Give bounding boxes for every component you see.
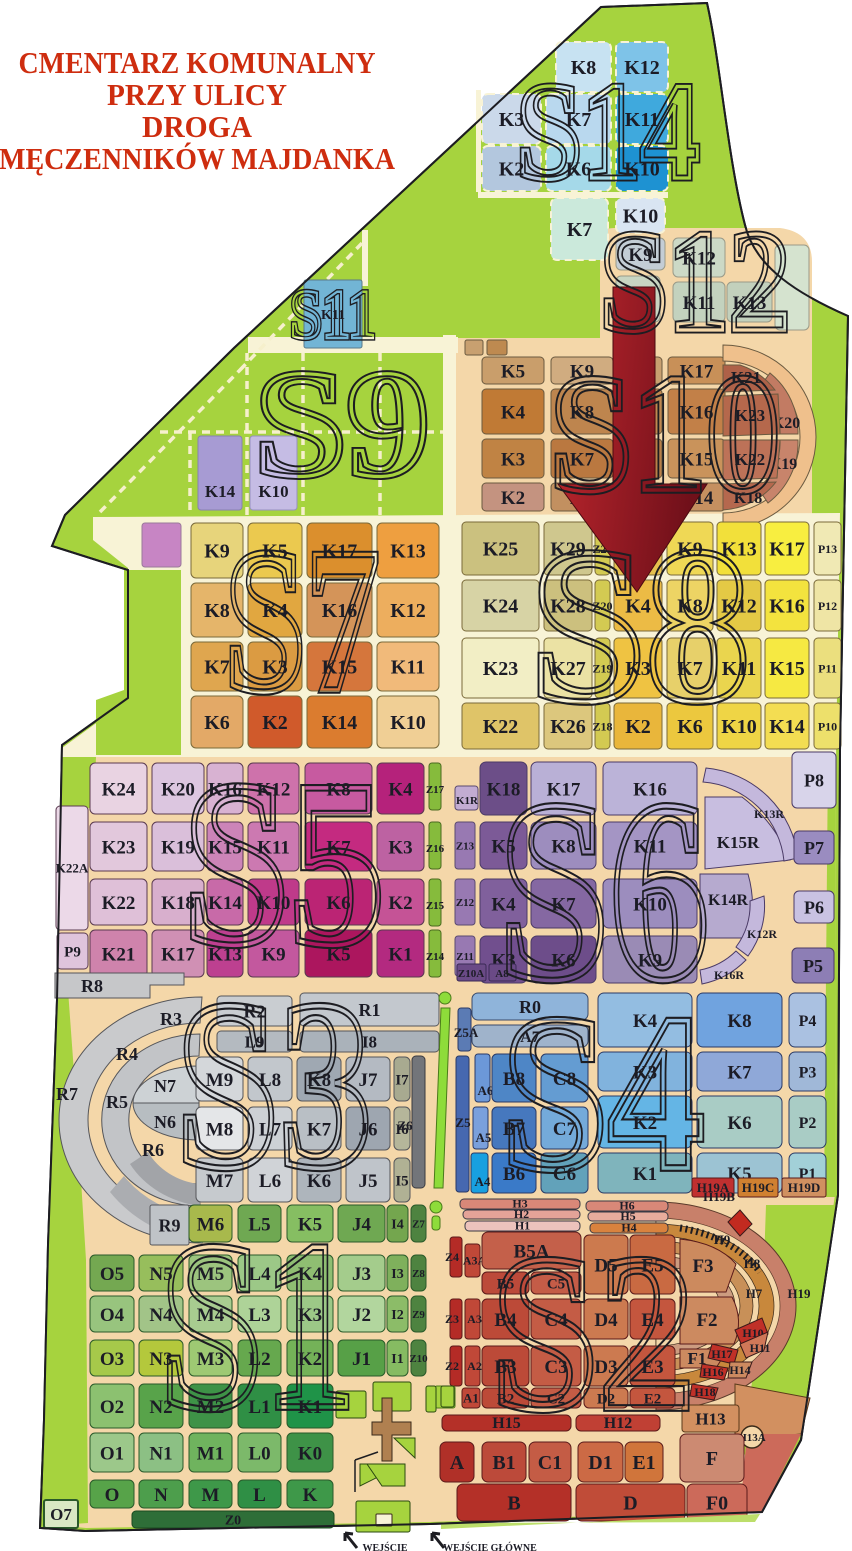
- svg-text:H11: H11: [750, 1341, 771, 1355]
- svg-text:Z12: Z12: [456, 897, 475, 909]
- svg-text:P4: P4: [799, 1013, 817, 1030]
- svg-text:Z16: Z16: [426, 843, 445, 855]
- svg-text:O5: O5: [100, 1264, 124, 1285]
- svg-text:P2: P2: [799, 1115, 817, 1132]
- svg-text:O3: O3: [100, 1349, 124, 1370]
- svg-text:O4: O4: [100, 1305, 125, 1326]
- svg-text:K5: K5: [501, 361, 525, 382]
- svg-text:N: N: [154, 1485, 168, 1506]
- svg-text:Z9: Z9: [412, 1309, 425, 1321]
- svg-text:K12R: K12R: [747, 927, 777, 941]
- svg-text:K16: K16: [769, 596, 805, 618]
- svg-text:H19D: H19D: [788, 1180, 821, 1195]
- svg-text:PRZY ULICY: PRZY ULICY: [107, 77, 287, 112]
- svg-text:P8: P8: [804, 770, 824, 790]
- svg-text:K1R: K1R: [456, 795, 479, 807]
- svg-text:I3: I3: [391, 1267, 403, 1282]
- svg-text:R7: R7: [56, 1084, 78, 1104]
- svg-text:R8: R8: [81, 976, 103, 996]
- svg-text:K14: K14: [769, 716, 805, 738]
- svg-text:F0: F0: [706, 1493, 728, 1515]
- svg-text:Z13: Z13: [456, 841, 475, 853]
- svg-text:P12: P12: [818, 599, 837, 613]
- svg-text:M: M: [202, 1485, 220, 1506]
- svg-text:I4: I4: [391, 1218, 403, 1233]
- svg-text:O7: O7: [50, 1505, 72, 1524]
- svg-text:P7: P7: [804, 838, 824, 858]
- svg-text:K23: K23: [102, 837, 136, 858]
- svg-text:R4: R4: [116, 1044, 138, 1064]
- svg-text:I7: I7: [395, 1072, 409, 1088]
- svg-text:R5: R5: [106, 1092, 128, 1112]
- svg-text:Z11: Z11: [456, 951, 474, 963]
- svg-text:Z6: Z6: [397, 1118, 413, 1133]
- svg-text:D: D: [623, 1493, 637, 1515]
- svg-text:K4: K4: [501, 402, 526, 423]
- svg-text:Z4: Z4: [445, 1250, 459, 1264]
- svg-text:K15: K15: [769, 658, 805, 680]
- svg-text:Z7: Z7: [412, 1218, 425, 1230]
- svg-text:Z5: Z5: [455, 1115, 471, 1130]
- svg-text:K13R: K13R: [754, 807, 784, 821]
- svg-text:H8: H8: [744, 1256, 761, 1271]
- svg-text:H19C: H19C: [742, 1180, 775, 1195]
- svg-text:Z10: Z10: [409, 1353, 428, 1365]
- svg-text:I2: I2: [391, 1308, 403, 1323]
- svg-text:K22: K22: [102, 893, 136, 914]
- svg-text:P6: P6: [804, 897, 824, 917]
- svg-text:P9: P9: [64, 944, 81, 960]
- svg-text:P3: P3: [799, 1064, 817, 1081]
- svg-text:DROGA: DROGA: [142, 109, 253, 144]
- svg-text:K: K: [303, 1485, 318, 1506]
- svg-text:I1: I1: [391, 1352, 403, 1367]
- svg-text:CMENTARZ KOMUNALNY: CMENTARZ KOMUNALNY: [19, 45, 376, 80]
- svg-text:A: A: [450, 1452, 465, 1474]
- svg-text:H7: H7: [746, 1286, 763, 1301]
- svg-text:O: O: [105, 1485, 120, 1506]
- svg-text:Z5A: Z5A: [454, 1025, 479, 1040]
- svg-text:H19: H19: [787, 1286, 811, 1301]
- svg-text:K17: K17: [769, 539, 805, 561]
- svg-text:Z2: Z2: [445, 1359, 459, 1373]
- svg-text:K3: K3: [501, 449, 525, 470]
- svg-text:H14: H14: [729, 1363, 750, 1377]
- svg-text:Z17: Z17: [426, 784, 445, 796]
- svg-text:P11: P11: [818, 661, 837, 675]
- svg-text:I5: I5: [395, 1173, 408, 1189]
- svg-text:K8: K8: [727, 1011, 751, 1032]
- svg-text:Z14: Z14: [426, 951, 445, 963]
- svg-text:P5: P5: [803, 956, 823, 976]
- svg-text:K7: K7: [727, 1062, 752, 1083]
- svg-text:WEJŚCIE GŁÓWNE: WEJŚCIE GŁÓWNE: [443, 1542, 537, 1551]
- svg-text:Z15: Z15: [426, 900, 445, 912]
- svg-text:L: L: [253, 1485, 266, 1506]
- svg-text:K21: K21: [102, 944, 136, 965]
- svg-text:Z8: Z8: [412, 1268, 425, 1280]
- svg-text:B: B: [507, 1493, 520, 1515]
- svg-text:Z0: Z0: [225, 1514, 241, 1529]
- svg-text:K22A: K22A: [56, 861, 89, 876]
- svg-text:K24: K24: [102, 779, 136, 800]
- svg-text:MĘCZENNIKÓW MAJDANKA: MĘCZENNIKÓW MAJDANKA: [0, 141, 396, 176]
- svg-text:Z3: Z3: [445, 1312, 459, 1326]
- svg-text:H17: H17: [711, 1347, 732, 1361]
- svg-text:O2: O2: [100, 1397, 124, 1418]
- svg-text:O1: O1: [100, 1443, 124, 1464]
- svg-text:P10: P10: [818, 719, 837, 733]
- svg-text:K6: K6: [727, 1113, 751, 1134]
- svg-text:P13: P13: [818, 542, 837, 556]
- svg-text:WEJŚCIE: WEJŚCIE: [362, 1542, 407, 1551]
